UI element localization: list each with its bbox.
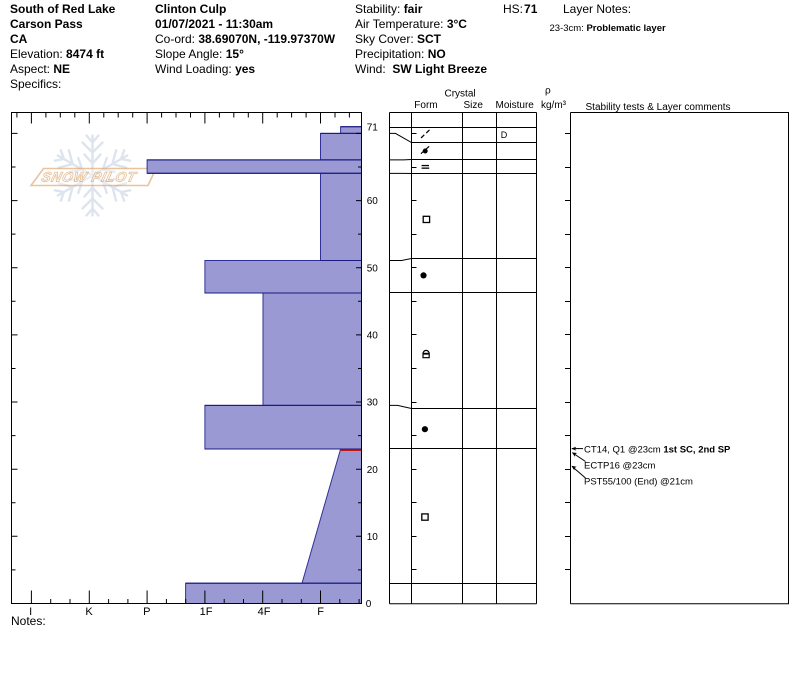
svg-text:50: 50 bbox=[367, 263, 379, 274]
svg-text:0: 0 bbox=[366, 599, 372, 610]
svg-text:Stability tests & Layer commen: Stability tests & Layer comments bbox=[586, 102, 731, 113]
svg-text:Form: Form bbox=[414, 100, 437, 111]
svg-text:30: 30 bbox=[367, 398, 379, 409]
svg-text:D: D bbox=[501, 130, 508, 140]
svg-text:Moisture: Moisture bbox=[496, 100, 535, 111]
svg-text:F: F bbox=[317, 606, 324, 618]
svg-text:10: 10 bbox=[367, 532, 379, 543]
svg-text:kg/m³: kg/m³ bbox=[541, 100, 567, 111]
svg-text:ρ: ρ bbox=[545, 86, 551, 97]
svg-text:60: 60 bbox=[367, 196, 379, 207]
svg-text:Crystal: Crystal bbox=[445, 89, 476, 100]
svg-text:K: K bbox=[85, 606, 93, 618]
svg-text:Size: Size bbox=[464, 100, 484, 111]
svg-text:P: P bbox=[143, 606, 150, 618]
svg-text:71: 71 bbox=[367, 122, 379, 133]
svg-text:20: 20 bbox=[367, 465, 379, 476]
svg-text:I: I bbox=[29, 606, 32, 618]
svg-text:SNOW PILOT: SNOW PILOT bbox=[40, 170, 139, 185]
svg-text:PST55/100 (End) @21cm: PST55/100 (End) @21cm bbox=[584, 477, 693, 488]
svg-text:ECTP16 @23cm: ECTP16 @23cm bbox=[584, 460, 656, 471]
svg-text:CT14, Q1 @23cm 1st SC, 2nd SP: CT14, Q1 @23cm 1st SC, 2nd SP bbox=[584, 445, 731, 456]
svg-text:1F: 1F bbox=[200, 606, 213, 618]
svg-text:40: 40 bbox=[367, 331, 379, 342]
svg-text:4F: 4F bbox=[258, 606, 271, 618]
